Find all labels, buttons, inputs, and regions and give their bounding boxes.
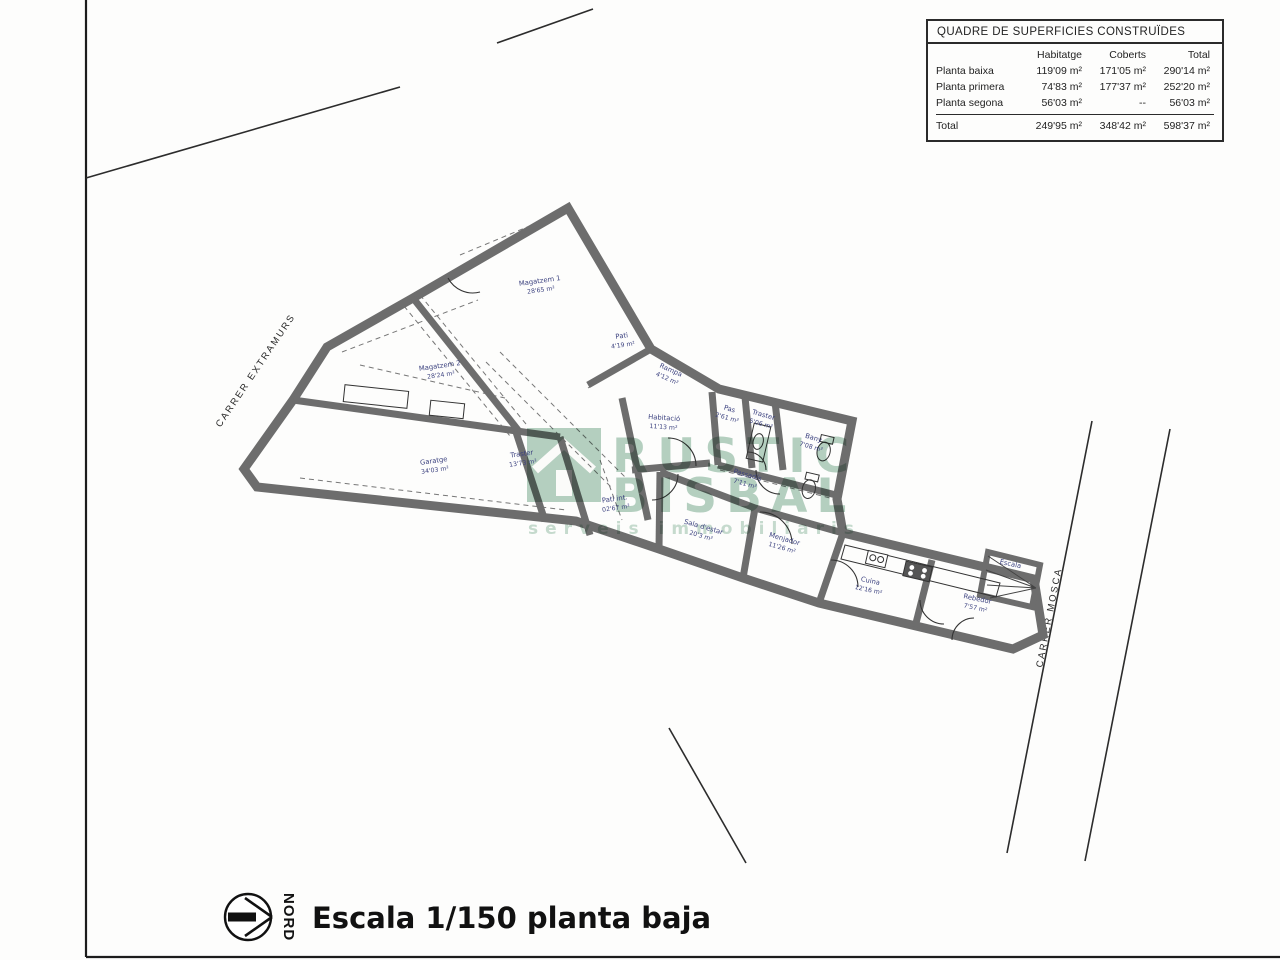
cell-total: 598'37 m² — [1146, 118, 1210, 134]
cell-habitatge: 249'95 m² — [1018, 118, 1082, 134]
cell-total: 252'20 m² — [1146, 79, 1210, 95]
room-area-label: 4'19 m² — [611, 340, 636, 350]
room-area-label: 28'24 m² — [427, 370, 456, 381]
north-arrow-icon — [225, 894, 272, 940]
room-area-label: 28'65 m² — [527, 285, 556, 296]
room-label: Magatzem 2 — [418, 359, 461, 373]
street-line-top — [497, 9, 593, 43]
floor-plan-sheet: CARRER EXTRAMURS CARRER MOSCA — [0, 0, 1280, 960]
street-line-mosca-east — [1085, 429, 1170, 861]
surfaces-table-title: QUADRE DE SUPERFICIES CONSTRUÏDES — [928, 21, 1222, 44]
scale-text: Escala 1/150 planta baja — [312, 901, 711, 935]
surfaces-table: QUADRE DE SUPERFICIES CONSTRUÏDES Habita… — [926, 19, 1224, 142]
boundary-line-bottom — [669, 728, 746, 863]
cell-habitatge: 74'83 m² — [1018, 79, 1082, 95]
realtor-house-logo-icon — [527, 428, 601, 502]
plan-drawing: CARRER EXTRAMURS CARRER MOSCA — [0, 0, 1280, 960]
room-label: Habitació — [648, 413, 681, 423]
room-label: Pati — [615, 331, 629, 341]
sink-icon — [865, 551, 887, 568]
table-row: Planta baixa 119'09 m² 171'05 m² 290'14 … — [936, 63, 1214, 79]
surfaces-table-header-row: Habitatge Coberts Total — [936, 47, 1214, 63]
cell-habitatge: 56'03 m² — [1018, 95, 1082, 111]
table-row: Planta segona 56'03 m² -- 56'03 m² — [936, 95, 1214, 111]
cell-total: 290'14 m² — [1146, 63, 1210, 79]
room-area-label: 2'61 m² — [714, 412, 739, 425]
room-label: Magatzem 1 — [518, 274, 561, 288]
table-row: Planta primera 74'83 m² 177'37 m² 252'20… — [936, 79, 1214, 95]
room-area-label: 34'03 m² — [421, 465, 450, 476]
cell-coberts: 348'42 m² — [1082, 118, 1146, 134]
street-line-upper-left — [86, 87, 400, 178]
cell-coberts: -- — [1082, 95, 1146, 111]
row-label: Planta baixa — [936, 63, 1018, 79]
cell-coberts: 177'37 m² — [1082, 79, 1146, 95]
column-header-total: Total — [1146, 47, 1210, 63]
table-total-row: Total 249'95 m² 348'42 m² 598'37 m² — [936, 114, 1214, 134]
row-label: Total — [936, 118, 1018, 134]
cell-coberts: 171'05 m² — [1082, 63, 1146, 79]
cell-total: 56'03 m² — [1146, 95, 1210, 111]
header-spacer — [936, 47, 1018, 63]
column-header-habitatge: Habitatge — [1018, 47, 1082, 63]
row-label: Planta primera — [936, 79, 1018, 95]
north-label: NORD — [280, 893, 297, 941]
surfaces-table-grid: Habitatge Coberts Total Planta baixa 119… — [928, 44, 1222, 140]
cell-habitatge: 119'09 m² — [1018, 63, 1082, 79]
row-label: Planta segona — [936, 95, 1018, 111]
column-header-coberts: Coberts — [1082, 47, 1146, 63]
